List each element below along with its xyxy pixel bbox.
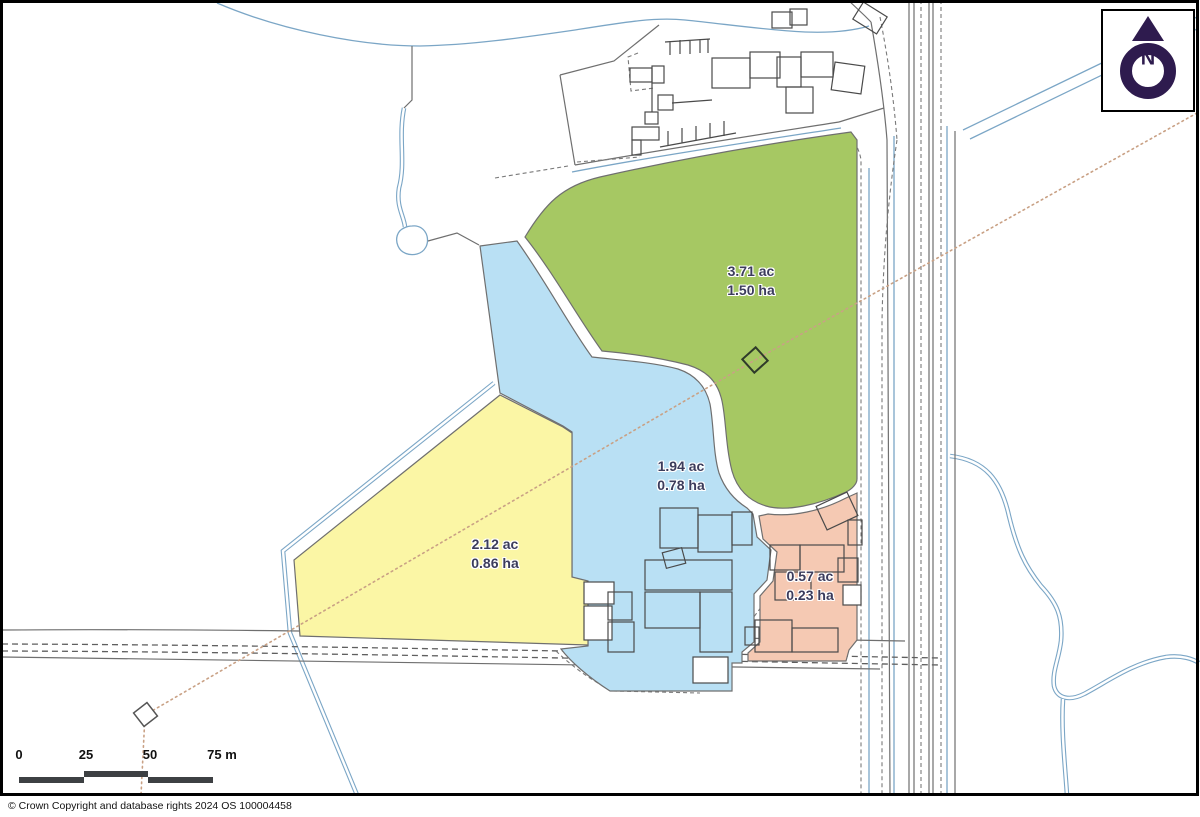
scale-segment (148, 777, 213, 783)
parcel-label-pink: 0.57 ac 0.23 ha (786, 567, 833, 605)
pond (397, 226, 428, 255)
os-parcel-map: 3.71 ac 1.50 ha 1.94 ac 0.78 ha 2.12 ac … (0, 0, 1200, 817)
scale-tick: 50 (143, 747, 157, 762)
field-arc-line (217, 3, 869, 46)
acreage: 2.12 ac (471, 535, 518, 554)
parcels (294, 132, 857, 691)
acreage: 0.57 ac (786, 567, 833, 586)
hectares: 0.23 ha (786, 586, 833, 605)
scale-tick: 0 (15, 747, 22, 762)
parcel-label-blue: 1.94 ac 0.78 ha (657, 457, 704, 495)
hectares: 1.50 ha (727, 281, 774, 300)
scale-tick: 25 (79, 747, 93, 762)
parcel-label-green: 3.71 ac 1.50 ha (727, 262, 774, 300)
hectares: 0.78 ha (657, 476, 704, 495)
north-label: N (1141, 48, 1155, 71)
north-arrow-icon (1132, 16, 1164, 41)
scale-segment (84, 771, 148, 777)
acreage: 3.71 ac (727, 262, 774, 281)
parcel-yellow (294, 395, 588, 645)
map-canvas (0, 0, 1200, 817)
survey-marker-road (134, 703, 158, 727)
acreage: 1.94 ac (657, 457, 704, 476)
scale-tick: 75 m (207, 747, 237, 762)
east-stream (950, 456, 1199, 698)
hectares: 0.86 ha (471, 554, 518, 573)
parcel-label-yellow: 2.12 ac 0.86 ha (471, 535, 518, 573)
scale-segment (19, 777, 84, 783)
copyright-notice: © Crown Copyright and database rights 20… (8, 800, 292, 812)
north-arrow: N (1101, 9, 1195, 112)
